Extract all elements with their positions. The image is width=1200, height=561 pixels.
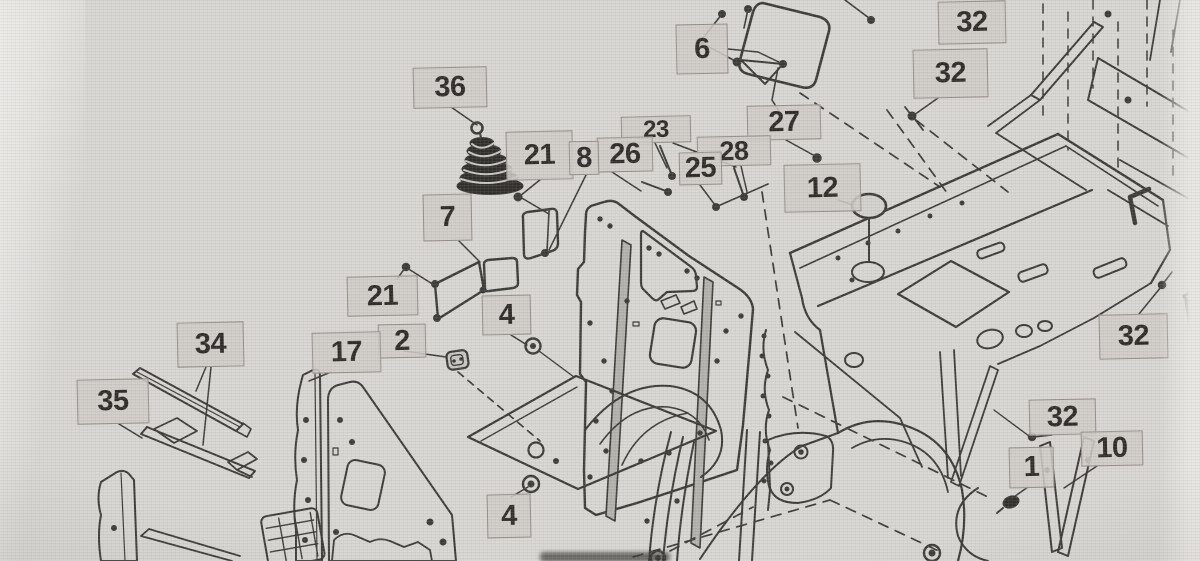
part-label-35: 35 (77, 378, 150, 424)
part-label-2: 2 (378, 324, 427, 359)
part-label-21-upper: 21 (505, 130, 573, 180)
part-label-10: 10 (1081, 430, 1144, 466)
part-label-17: 17 (312, 331, 382, 373)
part-label-25: 25 (679, 152, 723, 186)
part-label-4-upper: 4 (482, 294, 532, 335)
part-label-8: 8 (569, 141, 600, 176)
part-label-21-lower: 21 (347, 275, 419, 316)
part-label-7: 7 (423, 193, 473, 241)
part-label-4-lower: 4 (487, 494, 532, 539)
parts-catalog-diagram-screen: 6323236272326282521812721423417354323211… (0, 0, 1200, 561)
part-label-32-upper-right: 32 (912, 48, 988, 99)
part-label-6: 6 (675, 23, 728, 74)
part-label-32-mid-right: 32 (1099, 313, 1169, 359)
part-label-32-lower-right: 32 (1029, 398, 1097, 435)
part-label-32-top: 32 (938, 0, 1007, 44)
part-label-34: 34 (177, 321, 245, 367)
part-label-1: 1 (1009, 447, 1055, 489)
part-label-36: 36 (413, 66, 488, 109)
part-label-12: 12 (784, 163, 862, 213)
part-label-26: 26 (597, 136, 654, 172)
callout-labels-layer: 6323236272326282521812721423417354323211… (0, 0, 1200, 561)
